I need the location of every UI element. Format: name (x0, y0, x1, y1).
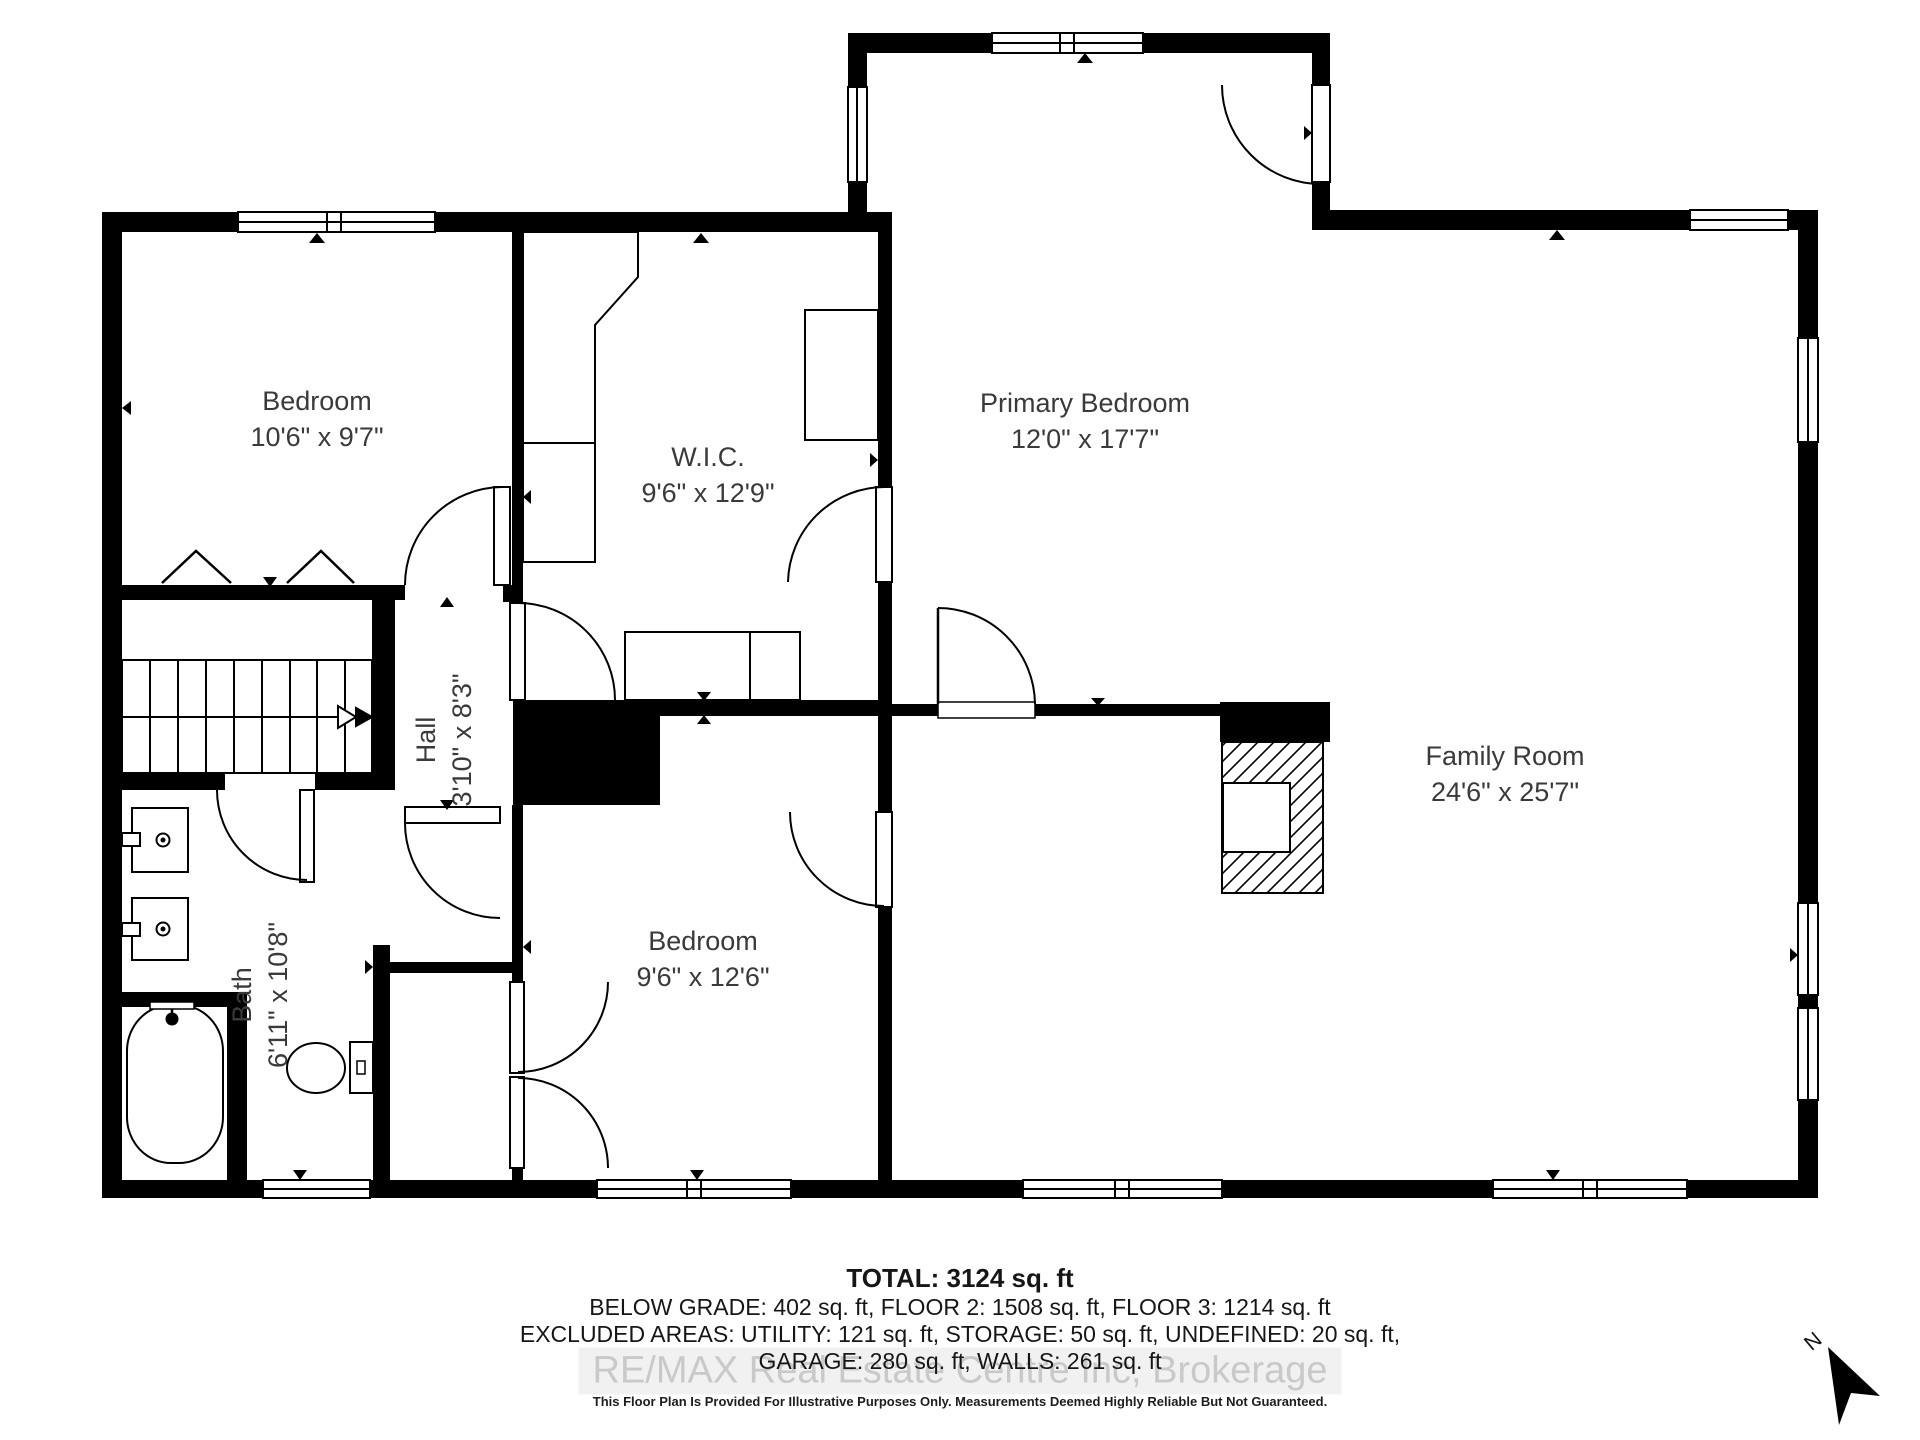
dimension-arrow (697, 715, 711, 724)
doorway-primary (938, 702, 1035, 718)
room-label-bedroom-1: Bedroom 10'6" x 9'7" (250, 383, 383, 455)
dimension-arrow (870, 453, 878, 467)
wall-top-left-section (102, 212, 892, 232)
closet-rod-symbol (162, 551, 231, 583)
dimension-arrow (1546, 1170, 1560, 1180)
wall-wic-left (512, 232, 523, 603)
room-name: Hall (408, 673, 444, 806)
floor-plan-drawing (0, 0, 1920, 1440)
room-label-hall: Hall 3'10" x 8'3" (408, 673, 480, 806)
room-label-wic: W.I.C. 9'6" x 12'9" (641, 439, 774, 511)
fireplace (1222, 742, 1323, 893)
disclaimer-text: This Floor Plan Is Provided For Illustra… (593, 1394, 1327, 1409)
dimension-arrow (523, 940, 531, 954)
room-label-bath: Bath 6'11" x 10'8" (224, 922, 296, 1068)
room-dims: 9'6" x 12'6" (636, 959, 769, 995)
door-bath (217, 790, 314, 882)
fireplace-firebox (1223, 783, 1290, 852)
wall-stair-hall-divider (372, 597, 395, 790)
wall-closet-top (377, 962, 523, 973)
wall-bedroom2-right-upper (878, 716, 892, 812)
room-dims: 3'10" x 8'3" (444, 673, 480, 806)
vanity-faucet (122, 833, 140, 846)
bathtub (127, 1005, 223, 1163)
window-family-right-2 (1798, 903, 1818, 995)
dimension-arrow (365, 960, 373, 974)
door-wic-from-hall (510, 603, 615, 700)
stairs (122, 660, 372, 773)
shower-head (167, 1014, 178, 1025)
room-label-bedroom-2: Bedroom 9'6" x 12'6" (636, 923, 769, 995)
window-family-bottom-1 (1023, 1180, 1222, 1198)
door-hall-bottom (405, 807, 500, 918)
dimension-arrow (293, 1170, 307, 1180)
wall-bath-right (373, 945, 390, 1183)
wall-solid-mass (513, 700, 660, 805)
door-closet-french-upper (510, 982, 608, 1073)
room-dims: 10'6" x 9'7" (250, 419, 383, 455)
fireplace-base (1220, 702, 1330, 742)
room-name: W.I.C. (641, 439, 774, 475)
wic-shelving-bottom (625, 632, 800, 700)
closet-rod-symbol (287, 551, 354, 583)
wic-shelving-left (523, 232, 638, 562)
summary-line-2: BELOW GRADE: 402 sq. ft, FLOOR 2: 1508 s… (589, 1294, 1330, 1321)
room-dims: 12'0" x 17'7" (980, 421, 1190, 457)
door-primary-from-family (938, 608, 1035, 704)
window-family-right-3 (1798, 1008, 1818, 1100)
room-label-family-room: Family Room 24'6" x 25'7" (1425, 738, 1584, 810)
wall-wic-bottom (660, 700, 878, 716)
doorway-bath (225, 771, 315, 792)
dimension-arrow (122, 401, 131, 415)
window-layer (238, 33, 1818, 1198)
room-dims: 24'6" x 25'7" (1425, 774, 1584, 810)
dimension-arrow (1077, 53, 1093, 63)
dimension-arrow (1304, 126, 1312, 140)
dimension-arrow (1790, 948, 1798, 962)
wall-left (102, 212, 122, 1198)
summary-line-3: EXCLUDED AREAS: UTILITY: 121 sq. ft, STO… (520, 1321, 1400, 1348)
shower-bracket (150, 1002, 194, 1009)
door-closet-french-lower (510, 1077, 608, 1168)
wall-layer (102, 33, 1818, 1198)
window-primary-left (848, 87, 867, 182)
door-primary-entry (1222, 85, 1330, 184)
window-family-top (1690, 210, 1788, 230)
north-arrow-icon (1828, 1347, 1880, 1425)
window-bath-bottom (263, 1180, 370, 1198)
window-bedroom1-top (238, 212, 435, 232)
wall-bedroom1-bottom (122, 585, 405, 600)
dimension-arrow (693, 233, 709, 243)
wall-bedroom1-bottom-stub (503, 585, 523, 602)
room-name: Bedroom (636, 923, 769, 959)
toilet-button (357, 1061, 365, 1074)
dimension-arrow (690, 1170, 704, 1180)
room-dims: 9'6" x 12'9" (641, 475, 774, 511)
room-name: Bath (224, 922, 260, 1068)
room-dims: 6'11" x 10'8" (260, 922, 296, 1068)
summary-line-4: GARAGE: 280 sq. ft, WALLS: 261 sq. ft (758, 1348, 1161, 1375)
wall-wic-right-mid (878, 582, 892, 716)
window-family-right-1 (1798, 338, 1818, 442)
room-name: Family Room (1425, 738, 1584, 774)
dimension-arrow (1549, 230, 1565, 240)
summary-total: TOTAL: 3124 sq. ft (846, 1263, 1073, 1294)
dimension-arrow (309, 233, 325, 243)
door-bedroom1 (405, 487, 510, 585)
window-primary-top (992, 33, 1143, 53)
wall-wic-right-upper (878, 232, 892, 487)
room-name: Bedroom (250, 383, 383, 419)
window-bedroom2-bottom (597, 1180, 791, 1198)
wall-bedroom2-left-upper (512, 805, 523, 983)
door-bedroom2 (790, 812, 892, 907)
door-wic-from-primary (788, 487, 892, 582)
window-family-bottom-2 (1493, 1180, 1687, 1198)
wall-bedroom2-right-lower (878, 907, 892, 1183)
floor-plan-page: Bedroom 10'6" x 9'7" W.I.C. 9'6" x 12'9"… (0, 0, 1920, 1440)
dimension-arrow (440, 597, 454, 607)
wic-dresser (805, 310, 878, 440)
vanity-faucet (122, 923, 140, 936)
room-label-primary-bedroom: Primary Bedroom 12'0" x 17'7" (980, 385, 1190, 457)
room-name: Primary Bedroom (980, 385, 1190, 421)
